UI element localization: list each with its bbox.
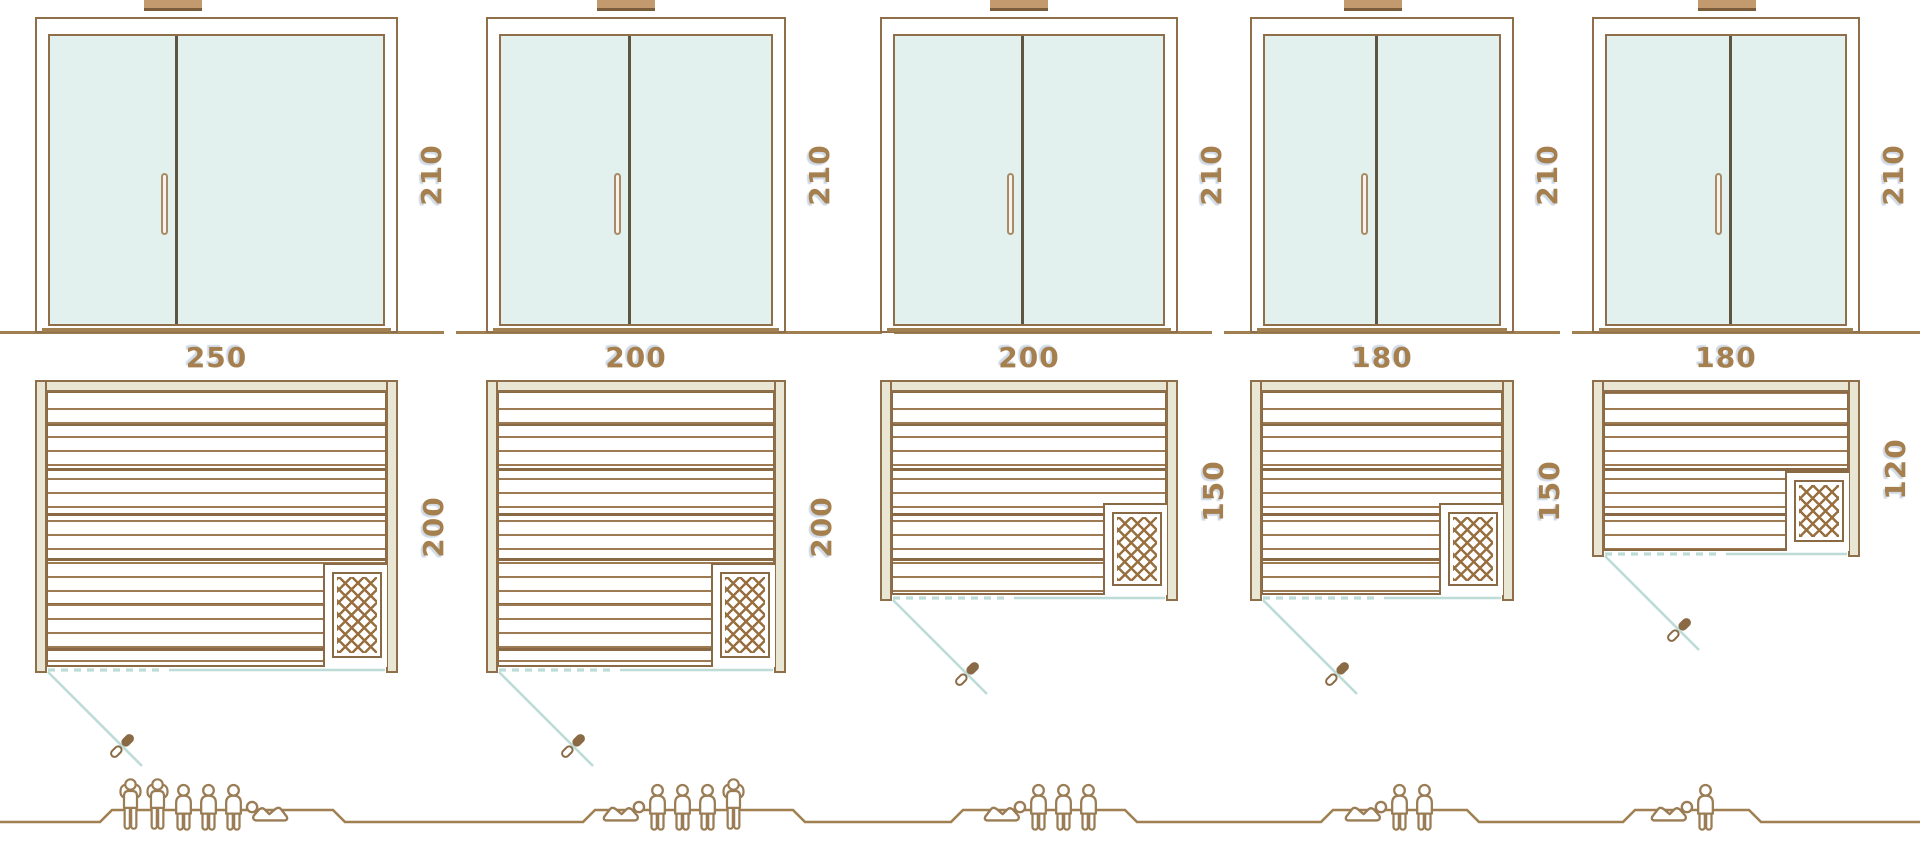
person-sitting-icon [700, 785, 715, 830]
door-handle-icon [1007, 173, 1014, 235]
floor-plan: 200 [35, 380, 398, 673]
sauna-unit-180x120: 180 210 120 [1592, 0, 1860, 856]
sauna-unit-200x200: 200 210 200 [486, 0, 786, 856]
glass-door-panel [893, 34, 1165, 326]
door-swing [486, 380, 786, 793]
person-lying-icon [985, 802, 1025, 820]
capacity-figures-4-persons [985, 785, 1096, 830]
door-threshold [887, 328, 1171, 332]
capacity-figures-2-persons [1652, 785, 1713, 830]
sauna-unit-250x200: 250 210 200 [35, 0, 398, 856]
depth-label: 150 [1533, 431, 1563, 551]
width-label: 200 [880, 341, 1178, 374]
person-lying-icon [1652, 802, 1692, 820]
door-swing-line [48, 672, 142, 766]
door-handle-icon [1361, 173, 1368, 235]
person-sitting-icon [1031, 785, 1046, 830]
depth-label: 200 [805, 467, 835, 587]
door-handle-icon [161, 173, 168, 235]
height-label: 210 [1195, 115, 1225, 235]
door-divider [175, 36, 178, 324]
door-swing-line [499, 672, 593, 766]
person-sitting-icon [1392, 785, 1407, 830]
floor-plan: 120 [1592, 380, 1860, 557]
person-lying-icon [604, 802, 644, 820]
capacity-figures-3-persons [1346, 785, 1432, 830]
person-lying-icon [247, 802, 287, 820]
person-sitting-icon [675, 785, 690, 830]
person-sitting-icon [1417, 785, 1432, 830]
person-sitting-icon [650, 785, 665, 830]
glass-door-panel [1605, 34, 1847, 326]
door-divider [1729, 36, 1732, 324]
height-label: 210 [415, 115, 445, 235]
door-elevation [35, 17, 398, 333]
roof-vent-icon [990, 0, 1048, 11]
person-sitting-icon [226, 785, 241, 830]
door-swing-line [1263, 600, 1357, 694]
width-label: 250 [35, 341, 398, 374]
door-divider [1375, 36, 1378, 324]
person-standing-icon [147, 779, 167, 828]
roof-vent-icon [1344, 0, 1402, 11]
door-swing [35, 380, 398, 793]
person-standing-icon [723, 779, 743, 828]
roof-vent-icon [144, 0, 202, 11]
door-handle-icon [1715, 173, 1722, 235]
glass-door-panel [48, 34, 385, 326]
door-swing [1250, 380, 1514, 721]
roof-vent-icon [1698, 0, 1756, 11]
door-threshold [42, 328, 391, 332]
person-sitting-icon [201, 785, 216, 830]
width-label: 200 [486, 341, 786, 374]
height-label: 210 [1531, 115, 1561, 235]
depth-label: 150 [1197, 431, 1227, 551]
capacity-row [0, 778, 1920, 856]
height-label: 210 [1877, 115, 1907, 235]
door-threshold [1599, 328, 1853, 332]
door-divider [628, 36, 631, 324]
person-sitting-icon [1081, 785, 1096, 830]
roof-vent-icon [597, 0, 655, 11]
sauna-unit-200x150: 200 210 150 [880, 0, 1178, 856]
person-sitting-icon [1698, 785, 1713, 830]
glass-door-panel [1263, 34, 1501, 326]
door-swing-line [1605, 556, 1699, 650]
depth-label: 120 [1879, 409, 1909, 529]
door-elevation [1250, 17, 1514, 333]
floor-plan: 150 [880, 380, 1178, 601]
person-lying-icon [1346, 802, 1386, 820]
glass-door-panel [499, 34, 773, 326]
sauna-unit-180x150: 180 210 150 [1250, 0, 1514, 856]
door-swing [880, 380, 1178, 721]
door-swing [1592, 380, 1860, 677]
width-label: 180 [1592, 341, 1860, 374]
door-elevation [880, 17, 1178, 333]
door-threshold [493, 328, 779, 332]
height-label: 210 [803, 115, 833, 235]
bench-platform-line [0, 810, 1920, 822]
capacity-figures-5-persons [604, 779, 744, 829]
width-label: 180 [1250, 341, 1514, 374]
door-elevation [486, 17, 786, 333]
capacity-figures-6-persons [120, 779, 287, 829]
depth-label: 200 [417, 467, 447, 587]
floor-plan: 150 [1250, 380, 1514, 601]
person-standing-icon [120, 779, 140, 828]
sauna-size-diagram: 250 210 200 [0, 0, 1920, 856]
door-threshold [1257, 328, 1507, 332]
door-swing-line [893, 600, 987, 694]
door-handle-icon [614, 173, 621, 235]
person-sitting-icon [1056, 785, 1071, 830]
floor-plan: 200 [486, 380, 786, 673]
door-elevation [1592, 17, 1860, 333]
door-divider [1021, 36, 1024, 324]
person-sitting-icon [176, 785, 191, 830]
